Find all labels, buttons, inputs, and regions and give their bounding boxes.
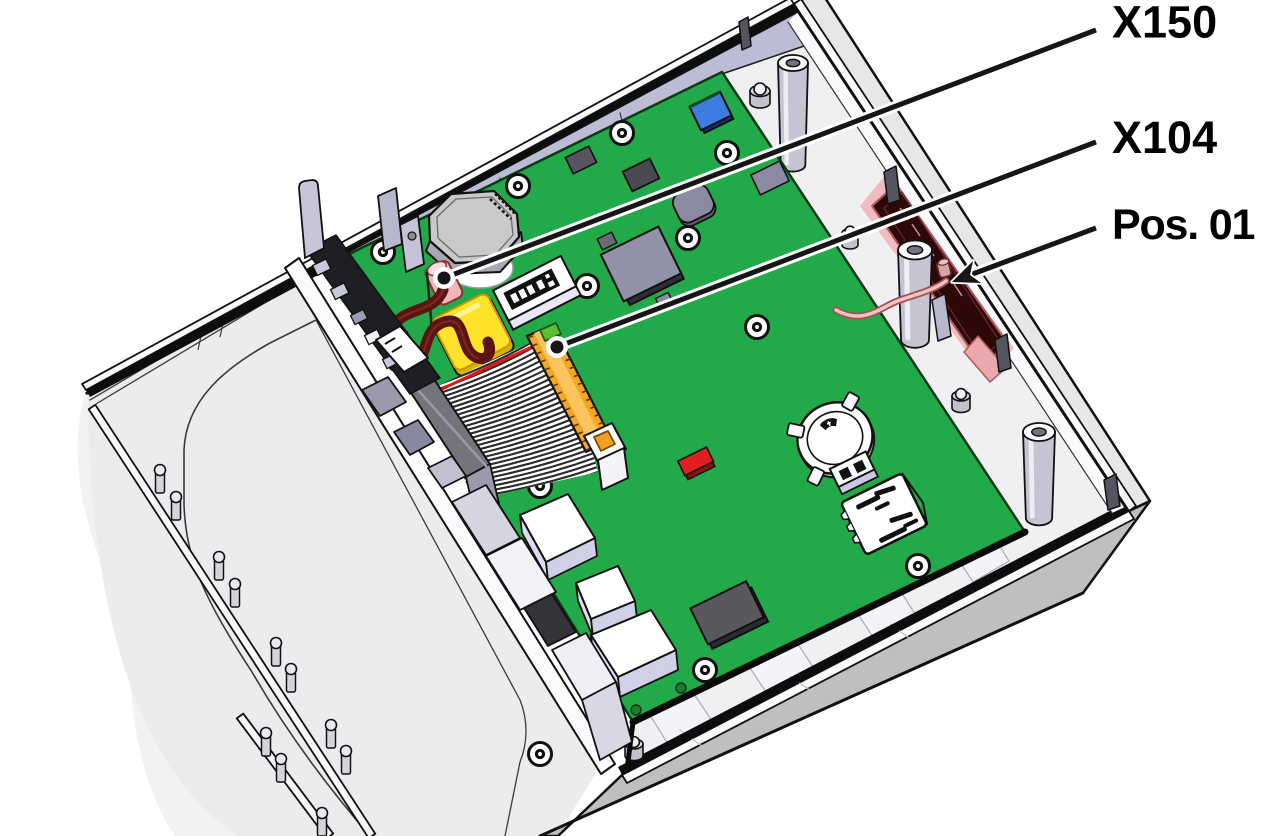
svg-text:Pos. 01: Pos. 01 — [1112, 201, 1254, 249]
svg-text:X150: X150 — [1112, 0, 1217, 48]
svg-text:X104: X104 — [1112, 112, 1217, 163]
